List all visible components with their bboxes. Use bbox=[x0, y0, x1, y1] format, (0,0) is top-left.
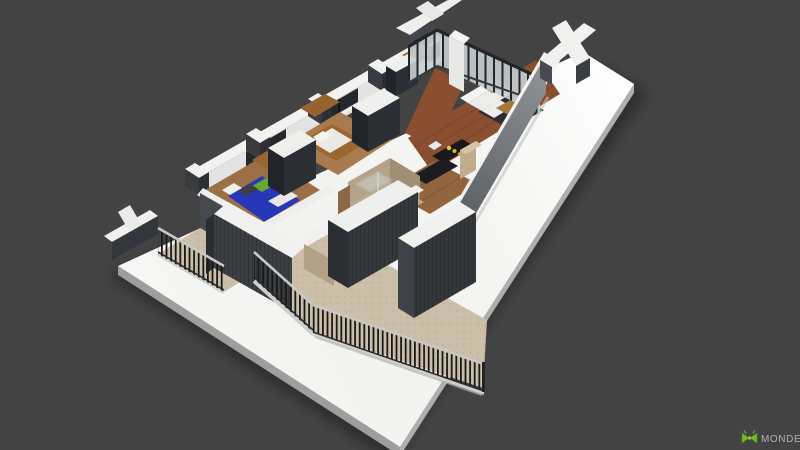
railing-end-post bbox=[482, 362, 485, 392]
bottle-yellow bbox=[453, 149, 457, 153]
floorplan-render: MONDE bbox=[0, 0, 800, 450]
monde-logo-text: MONDE bbox=[761, 434, 800, 445]
block-w2-face-sw bbox=[398, 238, 414, 318]
logo-bow-knot bbox=[748, 436, 751, 439]
floorplan-render-stage: MONDE bbox=[0, 0, 800, 450]
bottle-yellow bbox=[447, 146, 451, 150]
